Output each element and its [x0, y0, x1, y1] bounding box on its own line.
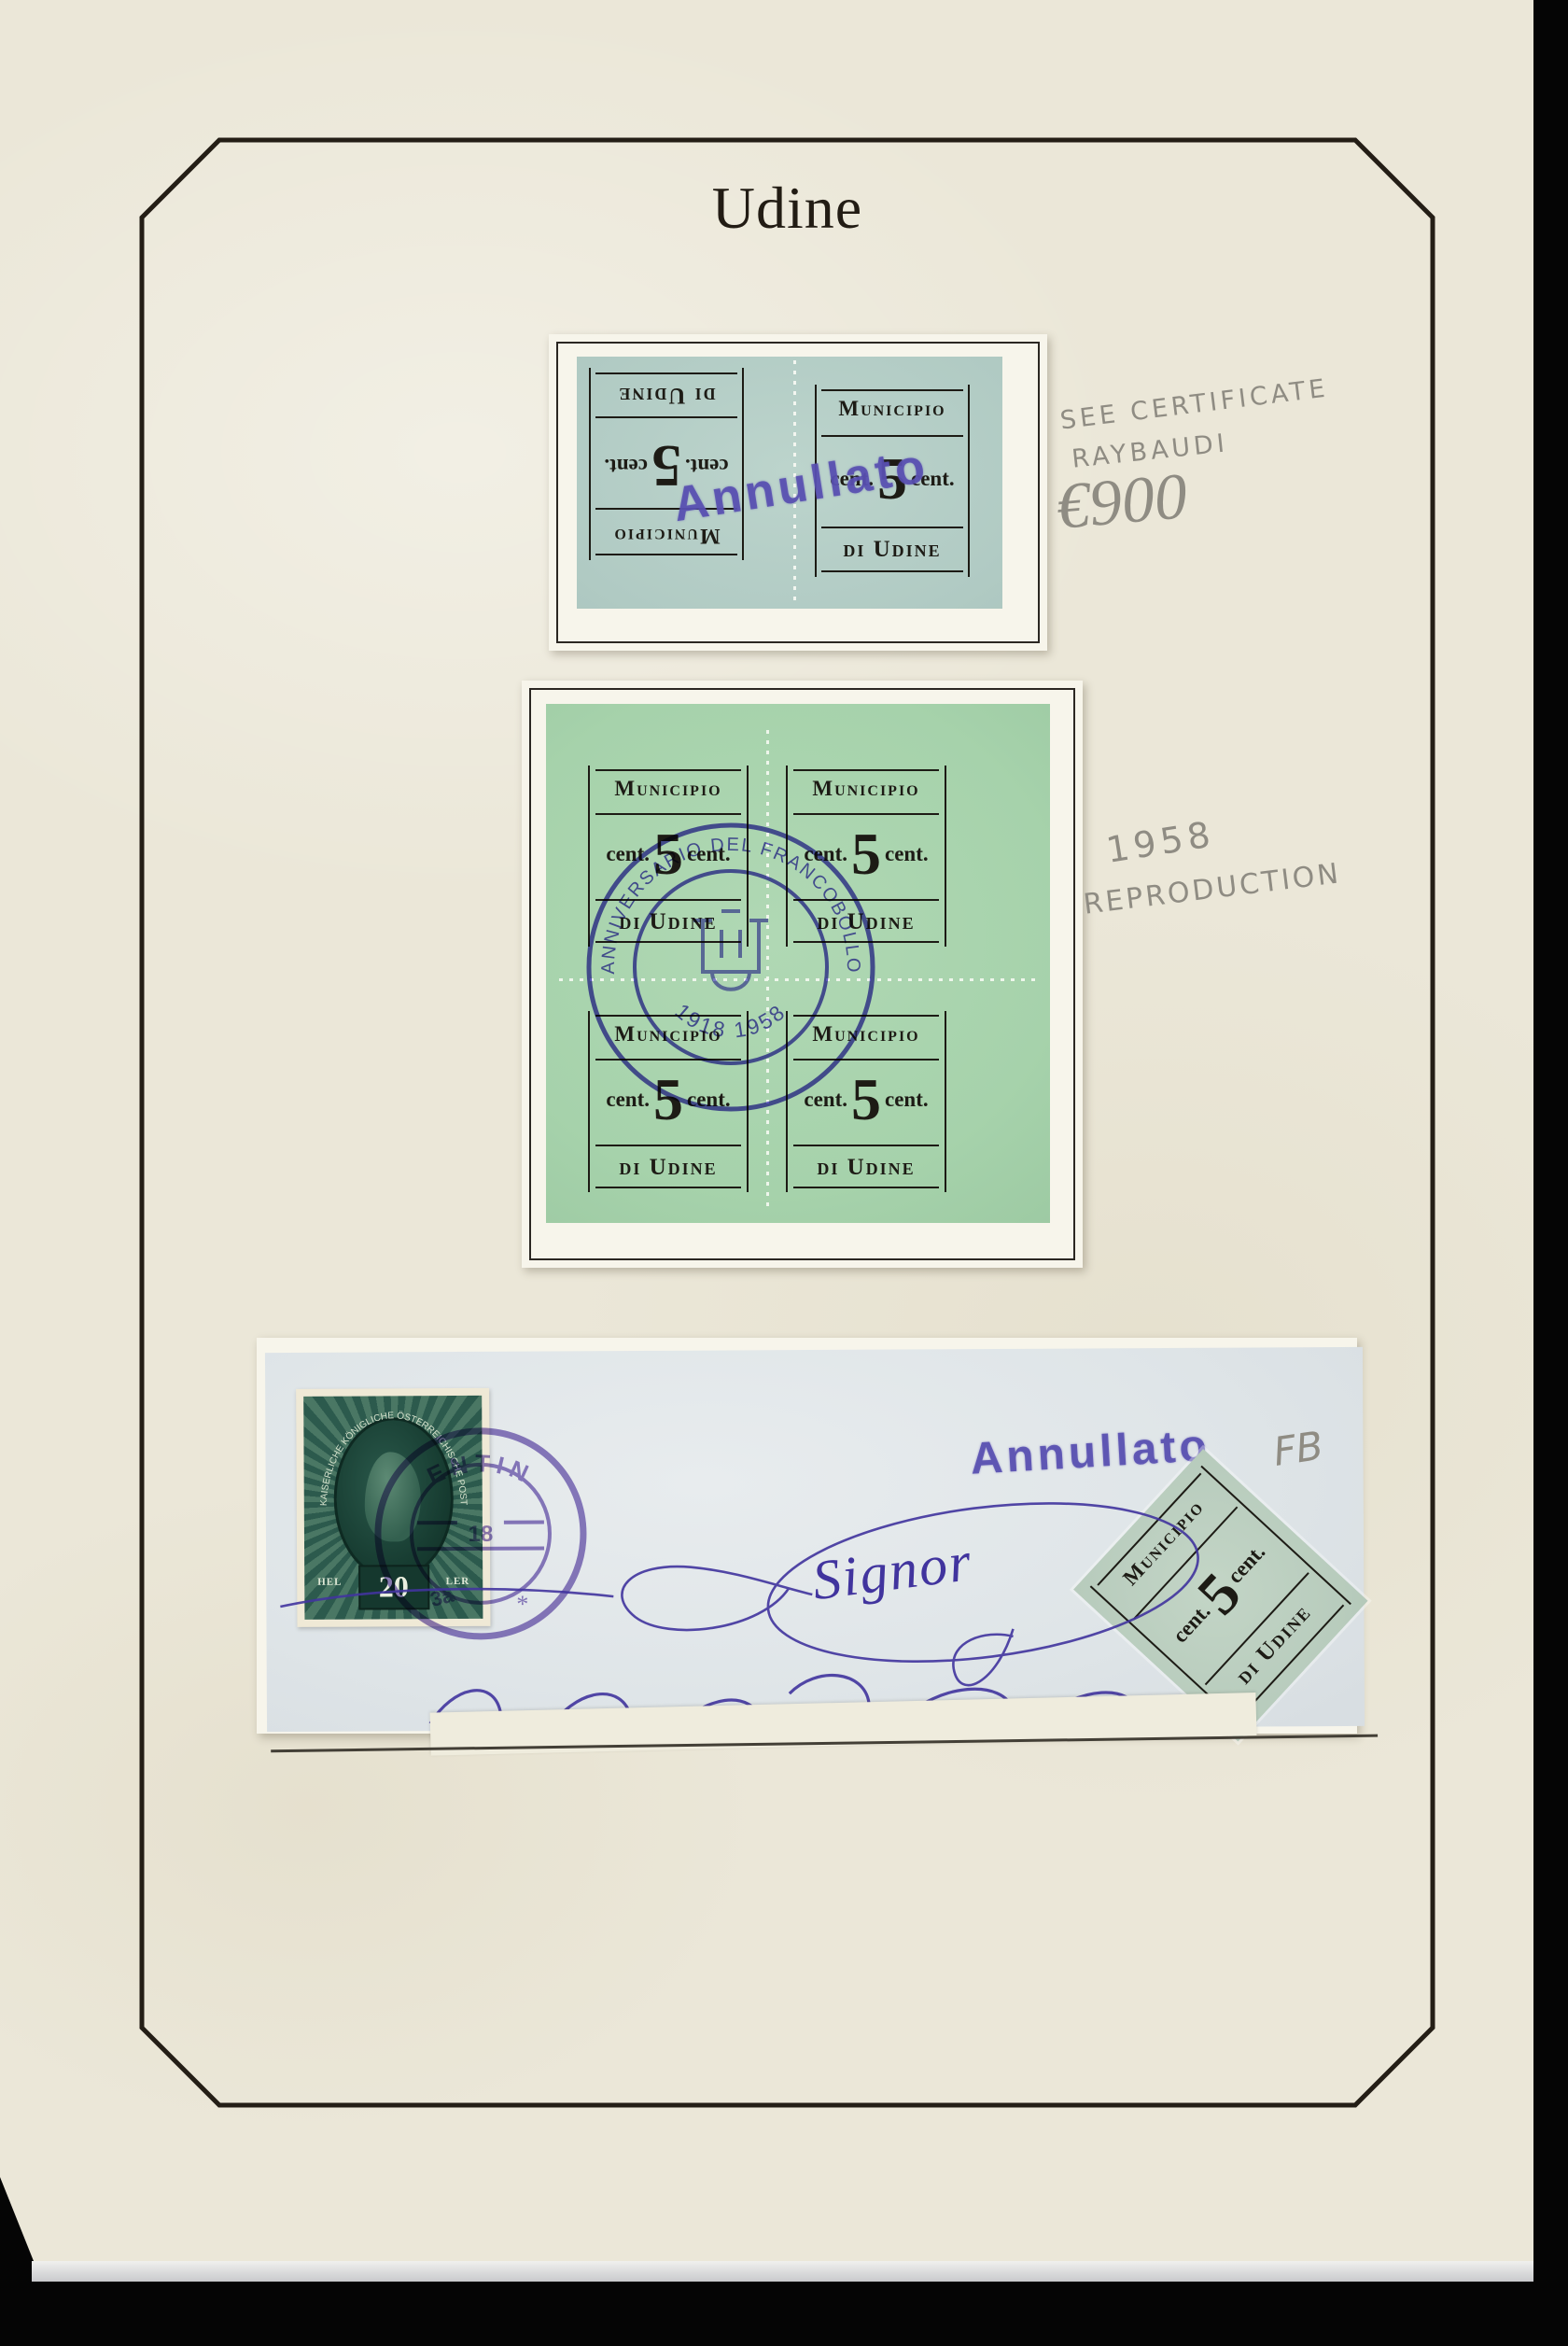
anniversary-cancel: ANNIVERSARIO DEL FRANCOBOLLO 1918 1958 [572, 808, 889, 1126]
block-mount-border: Municipio cent. 5 cent. di Udine Municip… [529, 688, 1075, 1260]
block-mount: Municipio cent. 5 cent. di Udine Municip… [522, 681, 1083, 1268]
stamp-unit-left: cent. [1168, 1599, 1215, 1648]
pair-mount-border: Municipio cent. 5 cent. di Udine Municip… [556, 342, 1040, 643]
cancel-years-text: 1918 1958 [670, 999, 791, 1043]
stamp-footer-text: di Udine [810, 537, 974, 563]
stamp-footer-text: di Udine [781, 1155, 951, 1181]
svg-text:1918 1958: 1918 1958 [670, 999, 791, 1043]
stamp-rule [821, 570, 962, 572]
address-script: Signor [808, 1529, 975, 1613]
stamp-header-text: Municipio [781, 777, 951, 801]
svg-text:ANNIVERSARIO DEL FRANCOBOLLO: ANNIVERSARIO DEL FRANCOBOLLO [598, 835, 863, 975]
pencil-price: €900 [1054, 459, 1190, 545]
municipio-stamp: Municipio cent. 5 cent. di Udine [1083, 1458, 1359, 1733]
heller-label-left: HEL [317, 1577, 342, 1588]
svg-text:ENTIN: ENTIN [423, 1449, 539, 1491]
stamp-unit-right: cent. [885, 842, 929, 866]
page-title: Udine [142, 174, 1433, 243]
postmark-star: * [516, 1591, 528, 1618]
page-stack-edge [32, 2261, 1533, 2282]
stamp-footer-text: di Udine [583, 1155, 753, 1181]
circular-postmark: ENTIN 18 3a * [358, 1412, 602, 1655]
stamp-rule [595, 769, 742, 771]
pair-mount: Municipio cent. 5 cent. di Udine Municip… [549, 334, 1047, 651]
photographed-album-page: Udine Municipio cent. 5 cent. di Udine M… [0, 0, 1568, 2346]
cover-mount: KAISERLICHE KÖNIGLICHE ÖSTERREICHISCHE P… [257, 1338, 1357, 1734]
pair-stamp-paper: Municipio cent. 5 cent. di Udine Municip… [577, 357, 1002, 609]
stamp-rule [595, 554, 736, 555]
stamp-footer-text: di Udine [584, 382, 749, 408]
annullato-handstamp: Annullato [969, 1416, 1280, 1485]
stamp-rule [595, 1145, 742, 1146]
block-stamp-paper: Municipio cent. 5 cent. di Udine Municip… [546, 704, 1050, 1223]
stamp-rule [793, 1145, 940, 1146]
stamp-header-text: Municipio [810, 397, 974, 421]
postmark-arc-text: ENTIN [423, 1449, 539, 1491]
stamp-rule [595, 372, 736, 374]
stamp-rule [595, 1187, 742, 1188]
expert-initials: FB [1270, 1423, 1326, 1475]
stamp-unit-right: cent. [1223, 1539, 1270, 1588]
cover-fragment: KAISERLICHE KÖNIGLICHE ÖSTERREICHISCHE P… [265, 1347, 1365, 1732]
stamp-rule [821, 527, 962, 528]
stamp-rule [793, 1187, 940, 1188]
stamp-rule [793, 769, 940, 771]
cover-udine-stamp-design: Municipio cent. 5 cent. di Udine [1083, 1458, 1359, 1733]
stamp-unit-right: cent. [604, 454, 648, 478]
stamp-unit-right: cent. [885, 1088, 929, 1112]
stamp-header-text: Municipio [583, 777, 753, 801]
stamp-rule [821, 389, 962, 391]
stamp-rule [595, 416, 736, 418]
postmark-date: 18 [469, 1522, 494, 1547]
postmark-index: 3a [427, 1583, 456, 1611]
cancel-ring-text: ANNIVERSARIO DEL FRANCOBOLLO [598, 835, 863, 975]
cancel-emblem [693, 911, 768, 990]
